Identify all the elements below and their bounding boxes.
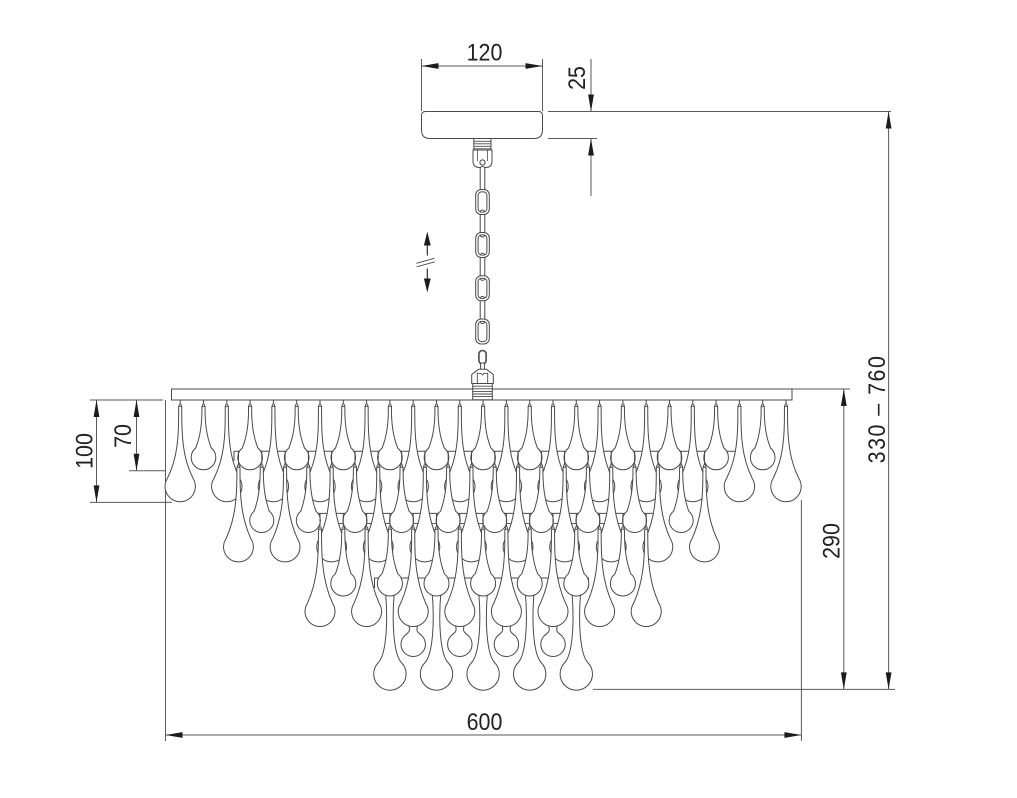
svg-text:25: 25: [563, 66, 591, 90]
svg-text:120: 120: [467, 38, 503, 66]
svg-text:290: 290: [817, 523, 845, 559]
svg-text:330 – 760: 330 – 760: [863, 355, 891, 464]
svg-text:100: 100: [70, 433, 98, 469]
svg-text:600: 600: [467, 708, 503, 736]
svg-text:70: 70: [109, 424, 137, 448]
